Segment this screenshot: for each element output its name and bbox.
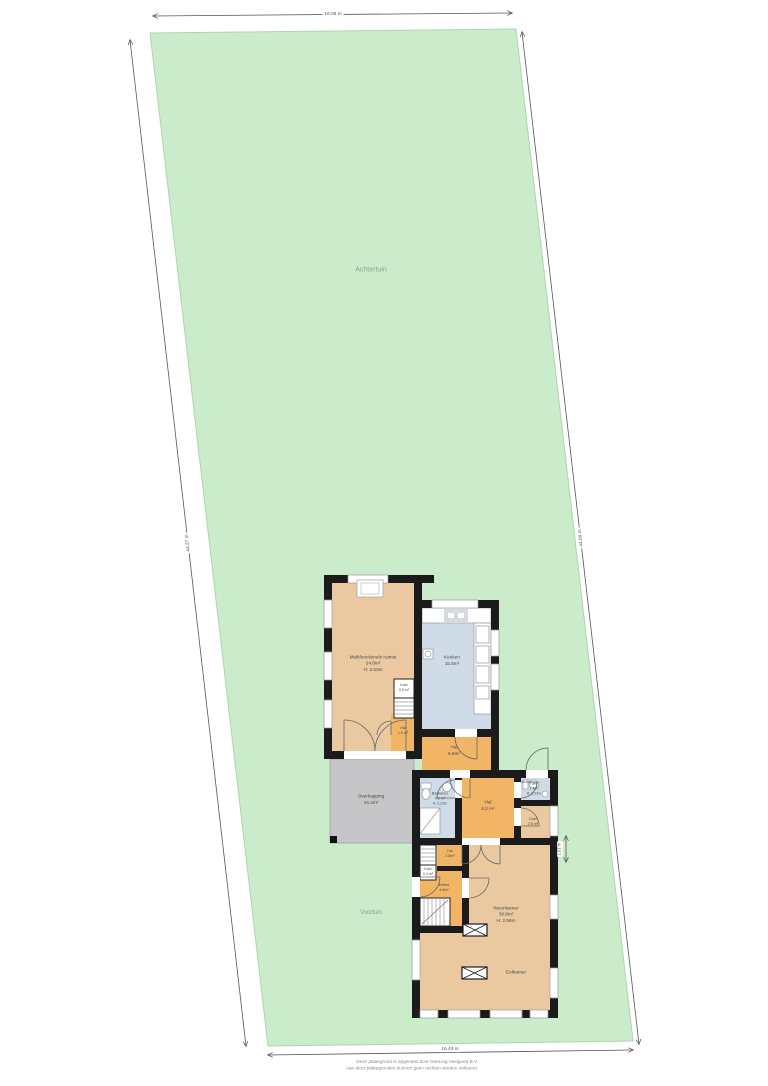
room-hal-6-5 (422, 737, 491, 770)
wc-sink-icon (542, 791, 548, 797)
stairs-cellar (420, 845, 436, 865)
wc-tank-icon (523, 780, 528, 789)
toilet-bowl-icon (422, 789, 430, 800)
overkapping-area (330, 759, 414, 843)
roof-hatch (357, 580, 383, 597)
stairs-upper (394, 698, 414, 718)
dim-line-top (153, 13, 512, 16)
dim-line-bottom (268, 1050, 633, 1055)
closet-top (394, 679, 414, 698)
plot-polygon (150, 29, 633, 1046)
footer-disclaimer: Deze plattegrond is opgesteld door DeeLi… (105, 1060, 478, 1072)
floorplan-page: Achtertuin Voortuin 16.08 m 44.27 m 44.0… (0, 0, 768, 1086)
closet-small (420, 865, 436, 880)
room-hal-klein (391, 714, 414, 751)
stove-icon (423, 649, 433, 659)
carport-post (330, 836, 337, 843)
site-plan-drawing (0, 0, 768, 1086)
wc-bowl-icon (529, 780, 539, 788)
room-hal-2-8 (437, 845, 462, 866)
room-kast-2-5 (521, 806, 550, 838)
